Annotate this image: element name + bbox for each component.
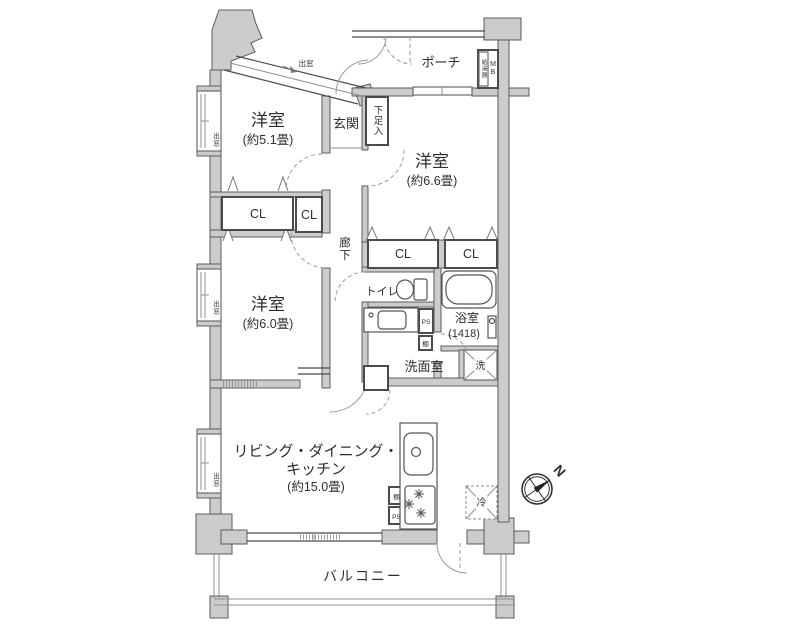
wall-right-outer <box>498 38 509 522</box>
porch-label: ポーチ <box>421 55 460 70</box>
wall-bottom-2 <box>382 530 437 544</box>
room60-size: (約6.0畳) <box>243 316 294 331</box>
closet-label-2: CL <box>301 208 317 222</box>
water-heater-label: 給湯器 <box>481 58 488 79</box>
washbasin-icon <box>364 308 418 332</box>
vanity-faucet <box>369 313 373 317</box>
wall-right-stub <box>509 88 529 96</box>
pipe-space-label-2: PS <box>392 514 401 521</box>
pipe-space-label-1: PS <box>422 319 431 326</box>
closet-label-3: CL <box>395 247 411 261</box>
wall-bottom-3 <box>467 530 484 544</box>
closet-label-4: CL <box>463 247 479 261</box>
room60-name: 洋室 <box>251 295 285 314</box>
ldk-line1: リビング・ダイニング・ <box>233 443 398 460</box>
room66-name: 洋室 <box>415 152 449 171</box>
bath-name: 浴室 <box>455 310 479 325</box>
vanity-sink <box>378 311 406 329</box>
bath-size: (1418) <box>448 328 480 340</box>
burner-1 <box>414 489 424 499</box>
kitchen-faucet <box>412 448 421 457</box>
shoe-box-label: 下足入 <box>372 105 384 137</box>
wall-bottom-1 <box>221 530 247 544</box>
ldk-line2: キッチン <box>286 461 346 478</box>
wall-rooms-east-1 <box>322 96 330 153</box>
wall-bottom-right-block <box>484 518 514 554</box>
toilet-label: トイレ <box>366 286 399 298</box>
closet-label-1: CL <box>250 207 266 221</box>
burner-2 <box>404 499 414 509</box>
shelf-label-1: 棚 <box>422 339 429 348</box>
wall-bottom-right-notch <box>514 531 529 543</box>
wall-bath-west-1 <box>434 267 441 332</box>
wall-corridor-east-2 <box>362 186 368 242</box>
shelf-label-2: 棚 <box>393 492 400 501</box>
burner-3 <box>416 508 426 518</box>
room51-name: 洋室 <box>251 111 285 130</box>
washer-label: 洗 <box>476 360 486 372</box>
bay-window-label-top: 出窓 <box>299 58 314 68</box>
ldk-size: (約15.0畳) <box>287 479 345 494</box>
kitchen-icon <box>400 423 437 529</box>
wall-toilet-south <box>362 302 437 307</box>
wall-rooms-east-3 <box>322 268 330 388</box>
hallway-label: 廊下 <box>338 236 351 262</box>
floor-plan-page: N 洋室 (約5.1畳) 洋室 (約6.6畳) 洋室 (約6.0畳) リビング・… <box>0 0 800 627</box>
fridge-label: 冷 <box>477 496 487 509</box>
wall-top-right-cap <box>484 18 521 40</box>
toilet-tank <box>414 279 427 300</box>
wall-rooms-east-2 <box>322 190 330 233</box>
toilet-bowl <box>397 280 414 299</box>
wall-porch-bottom-left <box>352 88 413 96</box>
floor-plan-drawing: N 洋室 (約5.1畳) 洋室 (約6.6畳) 洋室 (約6.0畳) リビング・… <box>0 0 800 627</box>
balcony-label: バルコニー <box>323 568 403 584</box>
entrance-label: 玄関 <box>333 116 359 131</box>
wall-cl-divider <box>438 240 445 268</box>
washroom-label: 洗面室 <box>404 359 443 374</box>
meter-box-label: MB <box>489 61 496 77</box>
room66-size: (約6.6畳) <box>407 173 458 188</box>
room51-size: (約5.1畳) <box>243 132 294 147</box>
wall-porch-bottom-right <box>472 88 498 96</box>
ldk-column <box>364 366 388 390</box>
bathtub-inner <box>446 275 492 304</box>
bath-faucet <box>490 319 495 324</box>
